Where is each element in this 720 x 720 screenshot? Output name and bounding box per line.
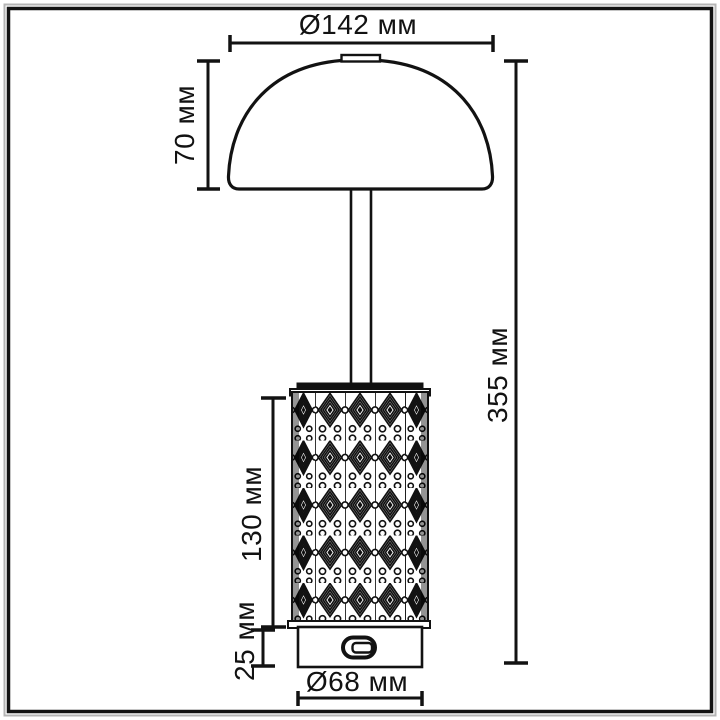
base-power-button-inner [353,643,373,653]
dimension-label-base-diameter: Ø68 мм [306,666,408,697]
lamp-shade-top-nub [342,55,381,62]
drawing-canvas: Ø142 мм 70 мм 355 мм 130 мм 25 мм Ø68 мм [0,0,720,720]
dimension-label-body-height: 130 мм [236,466,267,562]
lamp-technical-drawing: Ø142 мм 70 мм 355 мм 130 мм 25 мм Ø68 мм [0,0,720,720]
dimension-label-base-height: 25 мм [229,601,260,681]
dimension-label-total-height: 355 мм [482,327,513,423]
dimension-label-shade-height: 70 мм [169,85,200,165]
lamp-body-pattern [292,392,428,622]
body-right-shade [421,392,428,622]
lamp-stem [351,187,371,387]
dimension-label-shade-diameter: Ø142 мм [299,9,417,40]
body-left-shade [292,392,299,622]
